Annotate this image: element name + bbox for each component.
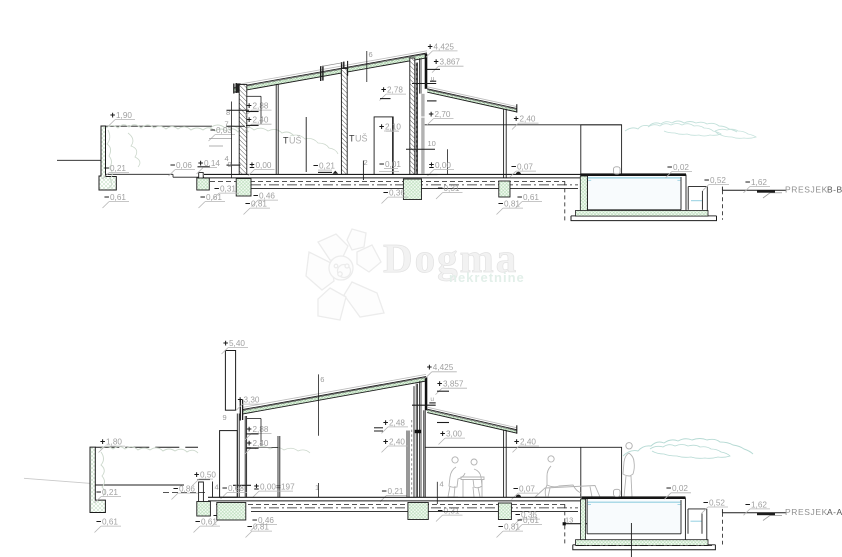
- svg-text:0,81: 0,81: [253, 523, 269, 532]
- svg-text:13: 13: [235, 484, 243, 491]
- svg-text:+: +: [381, 85, 386, 95]
- svg-text:−: −: [214, 184, 219, 194]
- svg-text:0,01: 0,01: [385, 160, 401, 169]
- svg-text:−: −: [513, 484, 518, 494]
- svg-text:5,40: 5,40: [229, 339, 245, 348]
- svg-text:PRESJEK: PRESJEK: [785, 507, 828, 517]
- svg-text:−: −: [383, 188, 388, 198]
- svg-text:0,61: 0,61: [523, 193, 539, 202]
- svg-text:0,61: 0,61: [110, 193, 126, 202]
- svg-text:0,00: 0,00: [435, 161, 451, 170]
- svg-text:B-B: B-B: [827, 185, 842, 195]
- svg-text:0,52: 0,52: [710, 176, 726, 185]
- svg-text:3,857: 3,857: [443, 380, 464, 389]
- svg-text:+: +: [247, 424, 252, 434]
- svg-text:+: +: [247, 115, 252, 125]
- svg-text:−: −: [438, 506, 443, 516]
- svg-text:+: +: [429, 109, 434, 119]
- svg-text:−: −: [438, 183, 443, 193]
- svg-text:1,62: 1,62: [751, 178, 767, 187]
- svg-text:−: −: [704, 175, 709, 185]
- svg-text:−: −: [104, 163, 109, 173]
- svg-text:0,00: 0,00: [256, 161, 272, 170]
- svg-text:1,80: 1,80: [106, 438, 122, 447]
- svg-text:+: +: [383, 417, 388, 427]
- svg-text:0,06: 0,06: [176, 161, 192, 170]
- svg-text:−: −: [745, 177, 750, 187]
- svg-text:0,21: 0,21: [319, 162, 335, 171]
- svg-text:−: −: [666, 483, 671, 493]
- svg-text:0,21: 0,21: [388, 487, 404, 496]
- svg-text:9: 9: [223, 413, 227, 422]
- svg-text:10: 10: [428, 139, 436, 148]
- svg-text:0,14: 0,14: [204, 159, 220, 168]
- svg-text:4: 4: [215, 483, 219, 492]
- svg-text:+: +: [440, 429, 445, 439]
- svg-text:−: −: [222, 483, 227, 493]
- svg-text:nekretnine: nekretnine: [449, 270, 525, 285]
- svg-text:−: −: [498, 199, 503, 209]
- svg-text:−: −: [173, 484, 178, 494]
- svg-text:+: +: [383, 436, 388, 446]
- svg-text:+: +: [223, 338, 228, 348]
- svg-text:0,81: 0,81: [504, 200, 520, 209]
- svg-text:2,70: 2,70: [435, 110, 451, 119]
- svg-text:3,30: 3,30: [244, 396, 260, 405]
- svg-text:0,86: 0,86: [179, 485, 195, 494]
- svg-text:u: u: [431, 76, 435, 83]
- svg-text:4,425: 4,425: [433, 363, 454, 372]
- svg-text:+: +: [110, 110, 115, 120]
- svg-text:±: ±: [254, 482, 259, 492]
- svg-text:2,78: 2,78: [387, 86, 403, 95]
- svg-text:−: −: [382, 486, 387, 496]
- svg-text:2,40: 2,40: [389, 437, 405, 446]
- svg-text:0,21: 0,21: [102, 488, 118, 497]
- svg-text:2,40: 2,40: [253, 439, 269, 448]
- svg-text:4: 4: [440, 480, 444, 489]
- svg-text:+: +: [428, 41, 433, 51]
- svg-text:2,40: 2,40: [520, 115, 536, 124]
- svg-text:−: −: [667, 162, 672, 172]
- svg-text:0,31: 0,31: [444, 184, 460, 193]
- svg-text:0,52: 0,52: [709, 498, 725, 507]
- svg-text:−: −: [498, 522, 503, 532]
- svg-text:±: ±: [250, 160, 255, 170]
- svg-text:2: 2: [364, 158, 368, 167]
- svg-text:UŠ: UŠ: [355, 134, 368, 144]
- svg-text:A-A: A-A: [827, 507, 842, 517]
- svg-text:2,40: 2,40: [520, 437, 536, 446]
- svg-text:−: −: [104, 192, 109, 202]
- svg-text:0,61: 0,61: [102, 518, 118, 527]
- svg-text:197: 197: [281, 483, 295, 492]
- svg-text:PRESJEK: PRESJEK: [785, 185, 828, 195]
- svg-text:+: +: [247, 101, 252, 111]
- svg-text:0,50: 0,50: [200, 471, 216, 480]
- svg-text:1,90: 1,90: [116, 111, 132, 120]
- svg-text:2,10: 2,10: [385, 122, 401, 131]
- svg-text:+: +: [427, 362, 432, 372]
- svg-text:−: −: [379, 159, 384, 169]
- svg-text:−: −: [745, 499, 750, 509]
- svg-text:±: ±: [429, 160, 434, 170]
- svg-text:4,425: 4,425: [434, 42, 455, 51]
- svg-text:1,62: 1,62: [751, 500, 767, 509]
- svg-text:0,31: 0,31: [220, 185, 236, 194]
- svg-text:3,867: 3,867: [440, 58, 461, 67]
- svg-text:−: −: [703, 497, 708, 507]
- svg-text:+: +: [247, 438, 252, 448]
- svg-text:−: −: [170, 160, 175, 170]
- svg-text:0,02: 0,02: [673, 163, 689, 172]
- svg-text:−: −: [313, 161, 318, 171]
- svg-text:2,40: 2,40: [253, 116, 269, 125]
- svg-text:0,21: 0,21: [110, 164, 126, 173]
- svg-text:−: −: [245, 199, 250, 209]
- svg-text:8: 8: [226, 108, 230, 117]
- svg-text:+: +: [379, 121, 384, 131]
- svg-text:+: +: [514, 114, 519, 124]
- svg-text:0,07: 0,07: [517, 163, 533, 172]
- svg-text:+: +: [434, 57, 439, 67]
- svg-text:2,48: 2,48: [389, 418, 405, 427]
- svg-text:0,61: 0,61: [523, 516, 539, 525]
- svg-text:0,81: 0,81: [504, 523, 520, 532]
- svg-text:−: −: [511, 162, 516, 172]
- svg-text:0,36: 0,36: [389, 189, 405, 198]
- svg-text:0,81: 0,81: [251, 200, 267, 209]
- svg-text:−: −: [247, 522, 252, 532]
- svg-text:+: +: [100, 437, 105, 447]
- svg-text:6: 6: [369, 50, 373, 59]
- svg-text:7: 7: [225, 120, 229, 129]
- svg-text:+: +: [194, 470, 199, 480]
- svg-text:3,00: 3,00: [446, 430, 462, 439]
- svg-text:+: +: [437, 379, 442, 389]
- svg-text:−: −: [200, 192, 205, 202]
- svg-text:0,02: 0,02: [672, 484, 688, 493]
- svg-text:4: 4: [225, 154, 229, 163]
- svg-text:−: −: [195, 517, 200, 527]
- svg-text:UŠ: UŠ: [289, 136, 302, 146]
- svg-text:−: −: [96, 517, 101, 527]
- svg-text:−: −: [210, 125, 215, 135]
- svg-text:+: +: [238, 395, 243, 405]
- svg-text:+: +: [514, 436, 519, 446]
- svg-text:+: +: [198, 158, 203, 168]
- svg-text:0,00: 0,00: [260, 483, 276, 492]
- svg-text:−: −: [96, 487, 101, 497]
- svg-text:0,07: 0,07: [519, 485, 535, 494]
- svg-text:u: u: [430, 396, 434, 403]
- svg-text:6: 6: [320, 375, 324, 384]
